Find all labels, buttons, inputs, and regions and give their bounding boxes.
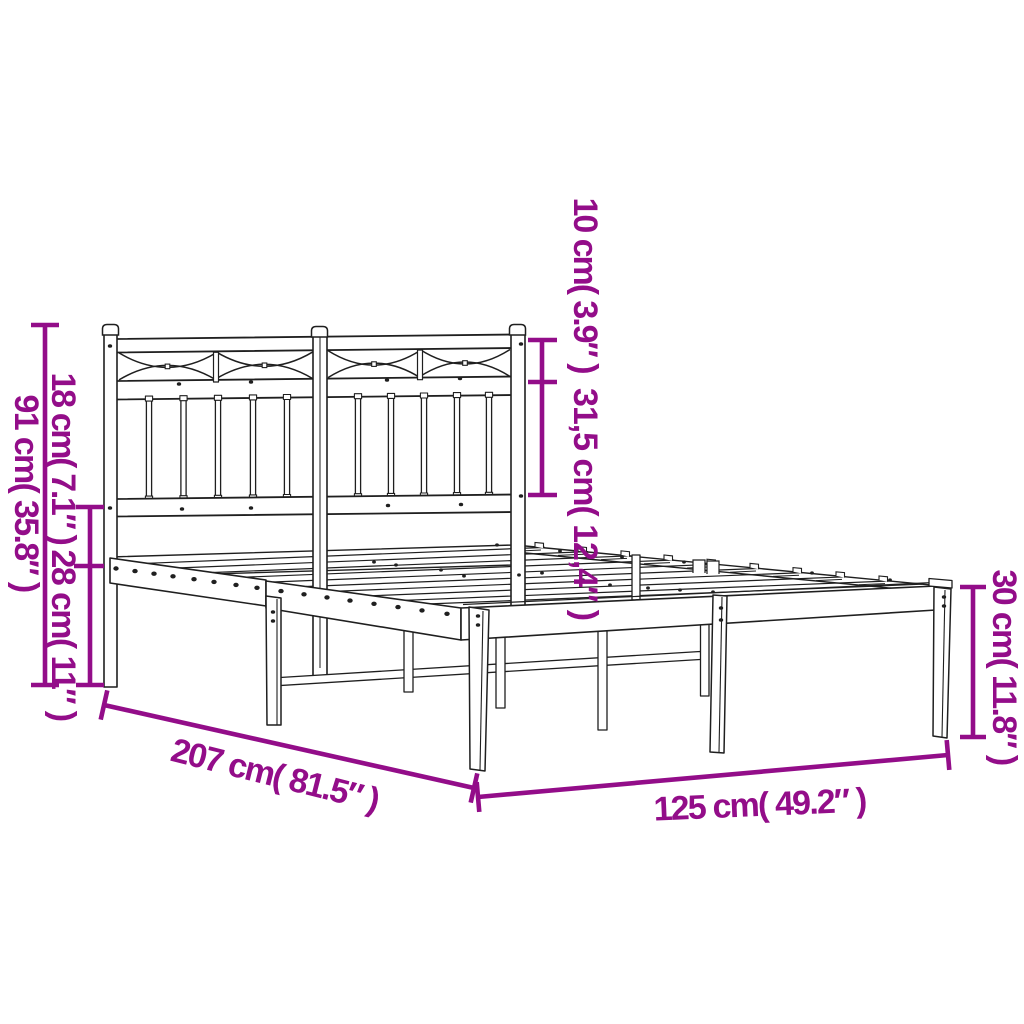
- svg-text:18 cm( 7.1″ ): 18 cm( 7.1″ ): [44, 373, 82, 545]
- svg-text:91 cm( 35.8″ ): 91 cm( 35.8″ ): [7, 394, 45, 591]
- svg-text:10 cm( 3.9″ ): 10 cm( 3.9″ ): [566, 198, 604, 374]
- svg-text:30 cm( 11.8″ ): 30 cm( 11.8″ ): [985, 569, 1023, 764]
- svg-text:31,5 cm( 12,4″ ): 31,5 cm( 12,4″ ): [566, 388, 604, 620]
- svg-text:28 cm( 11″ ): 28 cm( 11″ ): [44, 550, 82, 721]
